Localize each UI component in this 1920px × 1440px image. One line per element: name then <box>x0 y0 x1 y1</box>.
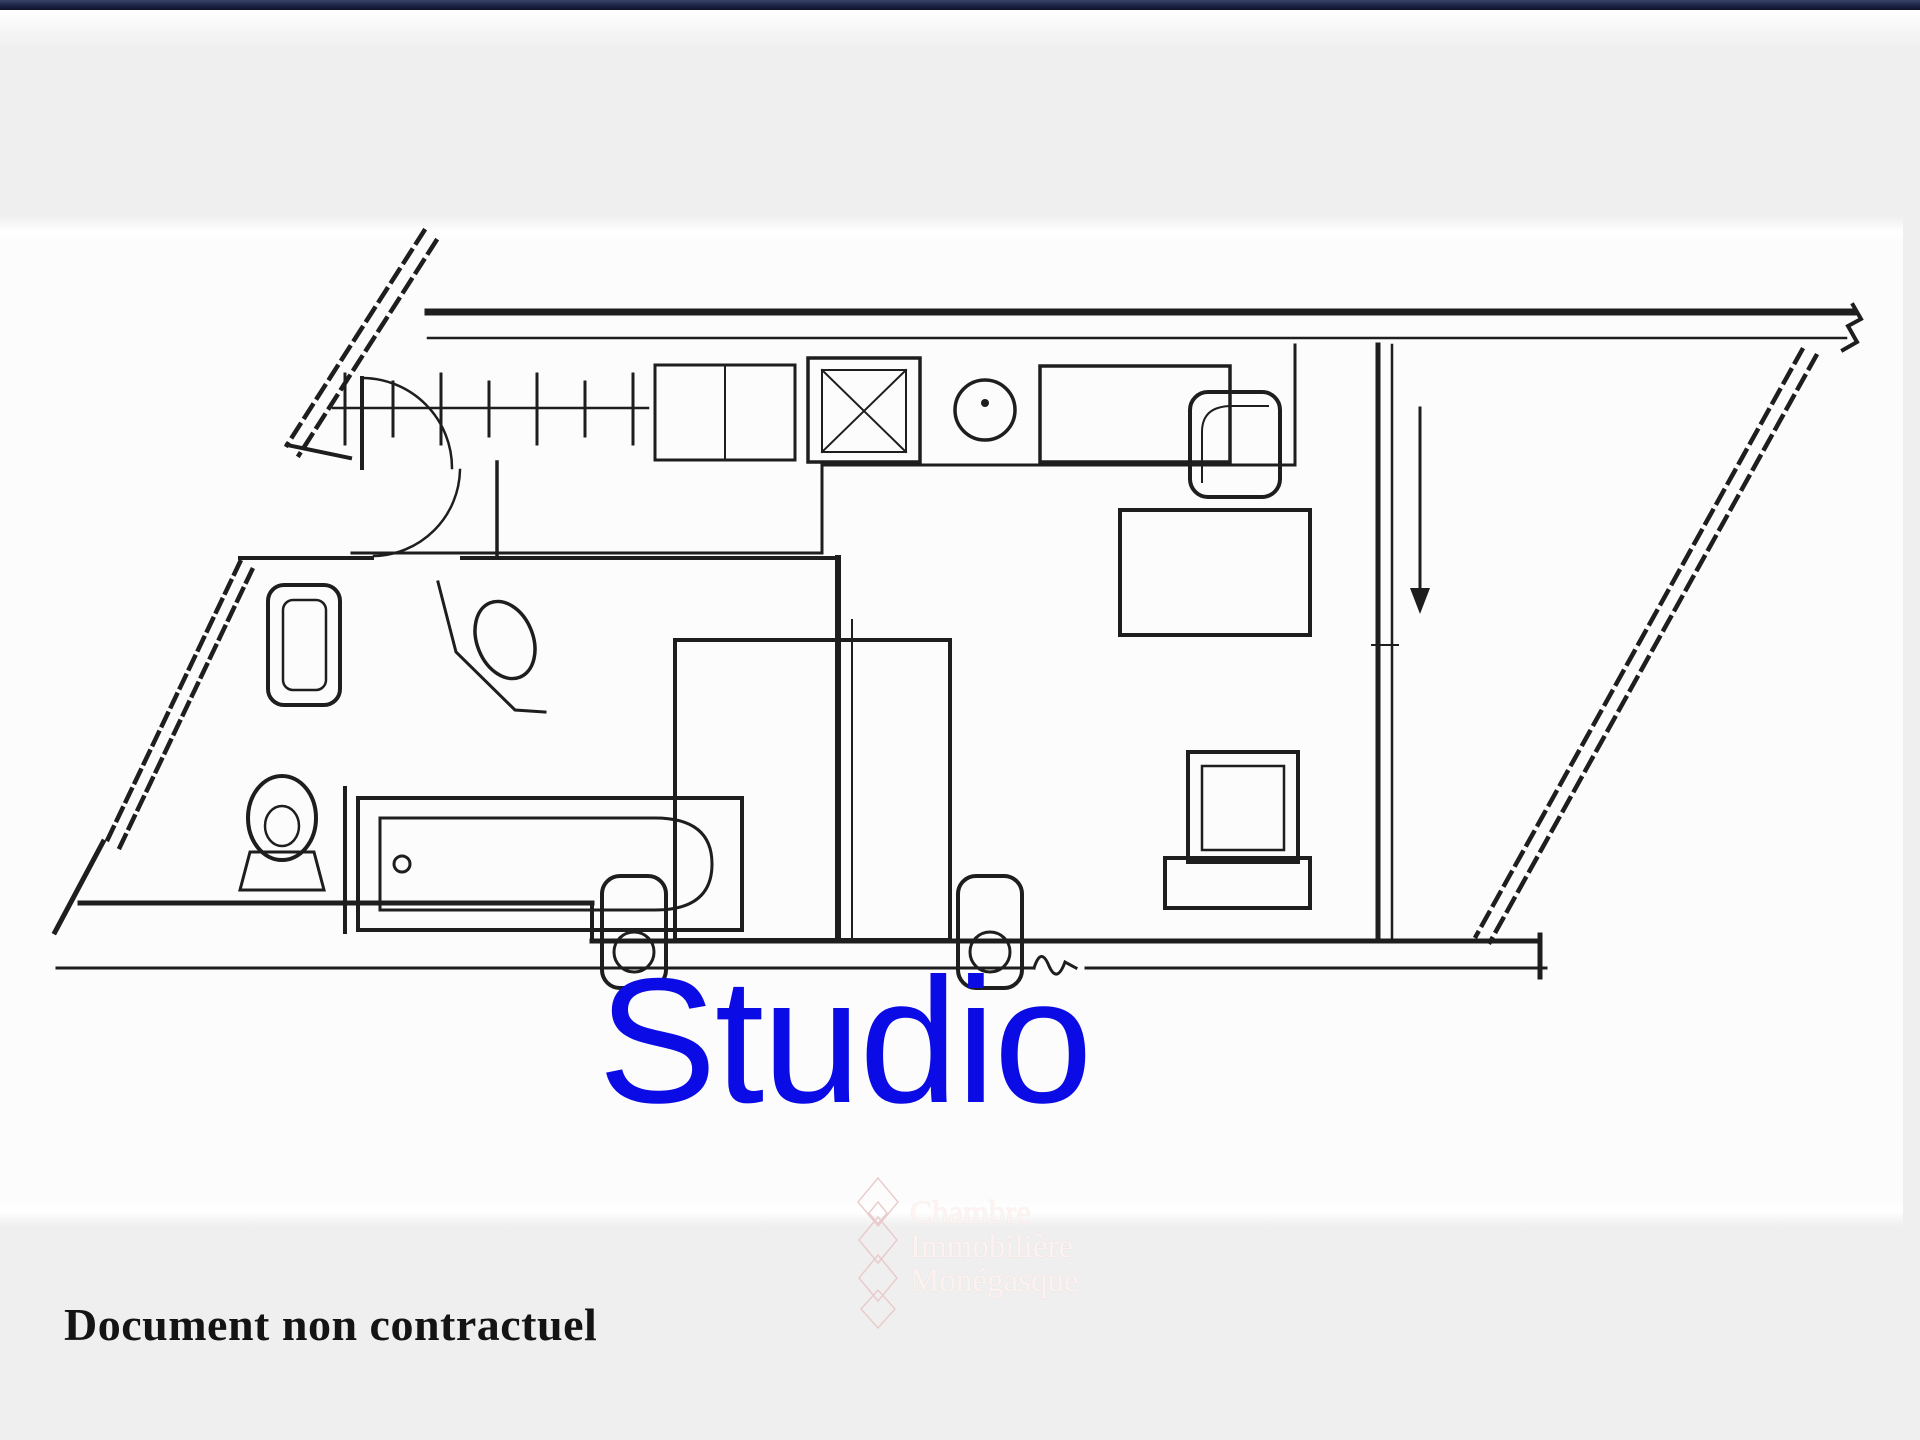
watermark-line: Monégasque <box>910 1264 1079 1298</box>
plan-title: Studio <box>598 952 1091 1130</box>
washbasin-icon <box>438 582 546 712</box>
footer-note: Document non contractuel <box>64 1298 597 1351</box>
window-dashed-icon <box>1476 350 1816 942</box>
armchair-icon <box>1190 392 1280 497</box>
radiator-icon <box>333 374 648 444</box>
living-area <box>602 408 1430 988</box>
direction-arrow-icon <box>1410 408 1430 614</box>
bathroom <box>240 582 742 932</box>
door-arc-icon <box>362 378 452 468</box>
tv-icon <box>1165 752 1310 908</box>
toilet-icon <box>268 585 340 705</box>
watermark: Chambre Immobilière Monégasque <box>848 1168 1168 1338</box>
table-icon <box>1120 510 1310 635</box>
kitchen-cabinet-icon <box>655 365 795 460</box>
window-dashed-icon <box>105 562 252 853</box>
bathtub-icon <box>358 798 742 930</box>
kitchen <box>333 345 1310 635</box>
watermark-line: Chambre <box>910 1196 1079 1230</box>
door-arc-icon <box>374 470 460 556</box>
watermark-line: Immobilière <box>910 1230 1079 1264</box>
hob-icon <box>808 358 920 462</box>
watermark-text: Chambre Immobilière Monégasque <box>910 1196 1079 1298</box>
walls <box>55 231 1861 977</box>
page: Studio Chambre Immobilière Monégasque Do… <box>0 0 1920 1440</box>
kitchen-sink-icon <box>955 380 1015 440</box>
toilet-icon <box>240 776 324 890</box>
counter-edge <box>352 345 1295 553</box>
bed-icon <box>675 640 950 940</box>
